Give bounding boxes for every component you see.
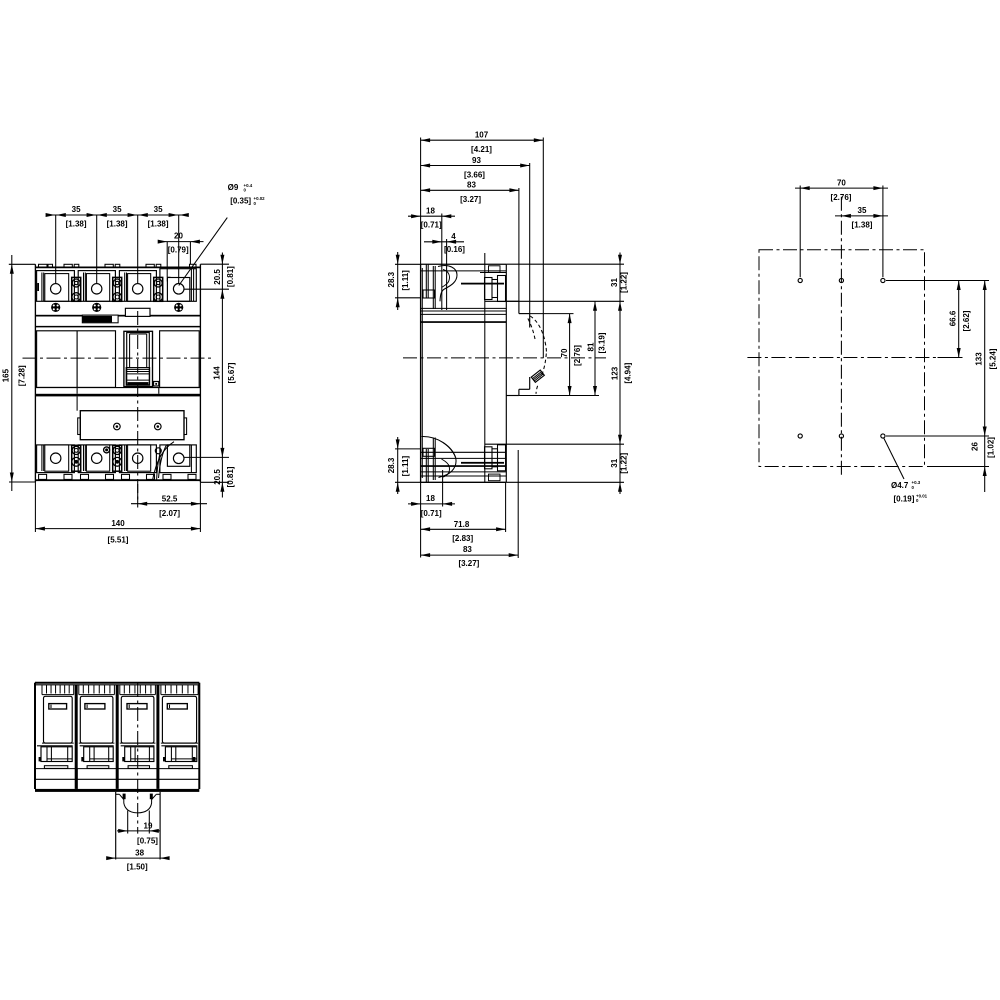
svg-text:70: 70: [837, 178, 846, 187]
svg-text:[1.38]: [1.38]: [852, 221, 873, 230]
svg-text:[1.11]: [1.11]: [401, 270, 410, 291]
svg-text:18: 18: [426, 206, 435, 215]
svg-text:[1.38]: [1.38]: [148, 220, 169, 229]
svg-text:35: 35: [858, 206, 867, 215]
svg-text:[0.79]: [0.79]: [168, 245, 189, 254]
svg-text:144: 144: [213, 366, 222, 380]
svg-text:52.5: 52.5: [162, 494, 178, 503]
svg-text:35: 35: [72, 205, 81, 214]
svg-text:[0.81]: [0.81]: [226, 266, 235, 287]
svg-text:[5.51]: [5.51]: [108, 536, 129, 545]
svg-text:28.3: 28.3: [387, 271, 396, 287]
svg-text:SIEMENS: SIEMENS: [84, 317, 110, 322]
svg-text:133: 133: [974, 352, 983, 366]
svg-text:[4.94]: [4.94]: [624, 362, 633, 383]
svg-text:35: 35: [154, 205, 163, 214]
svg-text:[2.83]: [2.83]: [452, 534, 473, 543]
svg-text:83: 83: [467, 181, 476, 190]
svg-text:[0.75]: [0.75]: [137, 837, 158, 846]
svg-text:81: 81: [586, 342, 595, 351]
svg-text:19: 19: [144, 822, 153, 831]
svg-text:140: 140: [111, 519, 125, 528]
svg-text:35: 35: [113, 205, 122, 214]
svg-text:38: 38: [135, 848, 144, 857]
svg-text:[5.67]: [5.67]: [227, 362, 236, 383]
svg-text:[0.16]: [0.16]: [444, 245, 465, 254]
svg-text:[2.76]: [2.76]: [573, 345, 582, 366]
svg-text:Ø9: Ø9: [228, 183, 239, 192]
svg-text:[1.38]: [1.38]: [66, 220, 87, 229]
svg-text:[1.02]: [1.02]: [987, 437, 996, 458]
svg-text:4: 4: [451, 232, 456, 241]
svg-text:26: 26: [971, 442, 980, 451]
svg-text:[0.81]: [0.81]: [226, 466, 235, 487]
svg-text:[0.71]: [0.71]: [421, 509, 442, 518]
svg-text:18: 18: [426, 494, 435, 503]
svg-text:70: 70: [560, 348, 569, 357]
svg-text:[3.27]: [3.27]: [458, 559, 479, 568]
svg-text:[7.28]: [7.28]: [17, 365, 26, 386]
svg-text:[1.22]: [1.22]: [620, 272, 629, 293]
svg-text:[1.22]: [1.22]: [620, 453, 629, 474]
svg-text:20.5: 20.5: [213, 469, 222, 485]
svg-text:66.6: 66.6: [948, 310, 957, 326]
svg-text:123: 123: [611, 366, 620, 380]
svg-text:[2.62]: [2.62]: [962, 310, 971, 331]
svg-text:71.8: 71.8: [454, 520, 470, 529]
svg-text:[1.38]: [1.38]: [107, 220, 128, 229]
svg-text:[0.19]: [0.19]: [894, 495, 915, 504]
svg-text:20.5: 20.5: [213, 269, 222, 285]
svg-text:107: 107: [475, 131, 489, 140]
svg-text:[4.21]: [4.21]: [471, 145, 492, 154]
svg-text:[0.35]: [0.35]: [230, 197, 251, 206]
svg-text:31: 31: [610, 458, 619, 467]
svg-text:[0.71]: [0.71]: [421, 221, 442, 230]
svg-text:93: 93: [472, 156, 481, 165]
svg-text:165: 165: [1, 368, 10, 382]
svg-text:[5.24]: [5.24]: [989, 348, 998, 369]
svg-text:20: 20: [174, 232, 183, 241]
svg-text:28.3: 28.3: [387, 457, 396, 473]
svg-text:[1.50]: [1.50]: [127, 863, 148, 872]
svg-text:31: 31: [610, 278, 619, 287]
svg-text:[1.11]: [1.11]: [401, 456, 410, 477]
svg-text:83: 83: [463, 545, 472, 554]
svg-text:[2.07]: [2.07]: [159, 509, 180, 518]
svg-text:[3.66]: [3.66]: [464, 170, 485, 179]
svg-text:Ø4.7: Ø4.7: [891, 481, 909, 490]
svg-text:[3.19]: [3.19]: [598, 332, 607, 353]
svg-text:[3.27]: [3.27]: [460, 195, 481, 204]
svg-text:[2.76]: [2.76]: [831, 193, 852, 202]
